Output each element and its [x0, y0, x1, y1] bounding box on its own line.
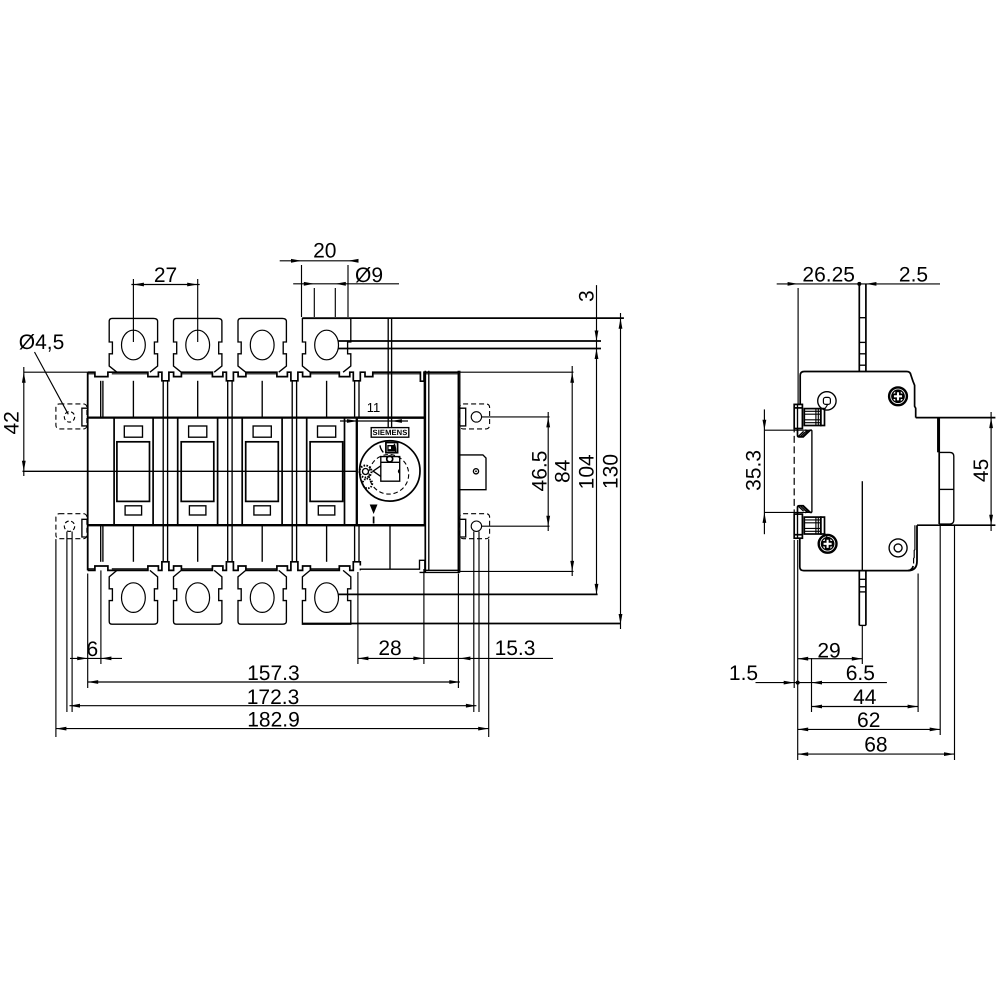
svg-text:46.5: 46.5 — [528, 451, 551, 492]
svg-text:29: 29 — [817, 640, 840, 663]
svg-text:Ø9: Ø9 — [355, 264, 383, 287]
svg-text:SIEMENS: SIEMENS — [373, 428, 408, 437]
svg-text:130: 130 — [599, 454, 622, 489]
svg-text:2.5: 2.5 — [899, 264, 928, 287]
svg-text:62: 62 — [857, 709, 880, 732]
svg-text:42: 42 — [1, 411, 24, 434]
svg-text:172.3: 172.3 — [247, 686, 300, 709]
svg-text:15.3: 15.3 — [495, 637, 536, 660]
svg-text:6: 6 — [86, 638, 98, 661]
svg-text:45: 45 — [970, 459, 993, 482]
svg-text:26.25: 26.25 — [802, 264, 855, 287]
svg-text:20: 20 — [313, 240, 336, 263]
svg-text:28: 28 — [378, 637, 401, 660]
svg-text:3: 3 — [576, 290, 599, 302]
svg-text:182.9: 182.9 — [247, 709, 300, 732]
svg-text:84: 84 — [551, 459, 574, 483]
svg-text:68: 68 — [864, 734, 887, 757]
svg-text:44: 44 — [853, 686, 877, 709]
svg-text:35.3: 35.3 — [743, 450, 766, 491]
svg-text:11: 11 — [367, 400, 381, 415]
svg-text:157.3: 157.3 — [247, 662, 300, 685]
svg-text:6.5: 6.5 — [846, 662, 875, 685]
svg-text:104: 104 — [575, 454, 598, 489]
svg-text:Ø4,5: Ø4,5 — [19, 331, 65, 354]
svg-text:27: 27 — [154, 264, 177, 287]
svg-text:1.5: 1.5 — [729, 662, 758, 685]
